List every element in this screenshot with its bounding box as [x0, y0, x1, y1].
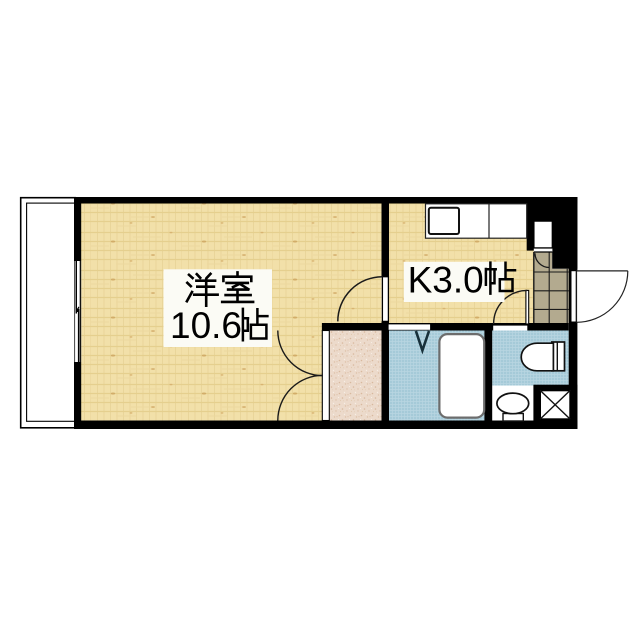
svg-text:10.6: 10.6	[170, 305, 242, 346]
svg-text:K3.0: K3.0	[408, 259, 484, 300]
